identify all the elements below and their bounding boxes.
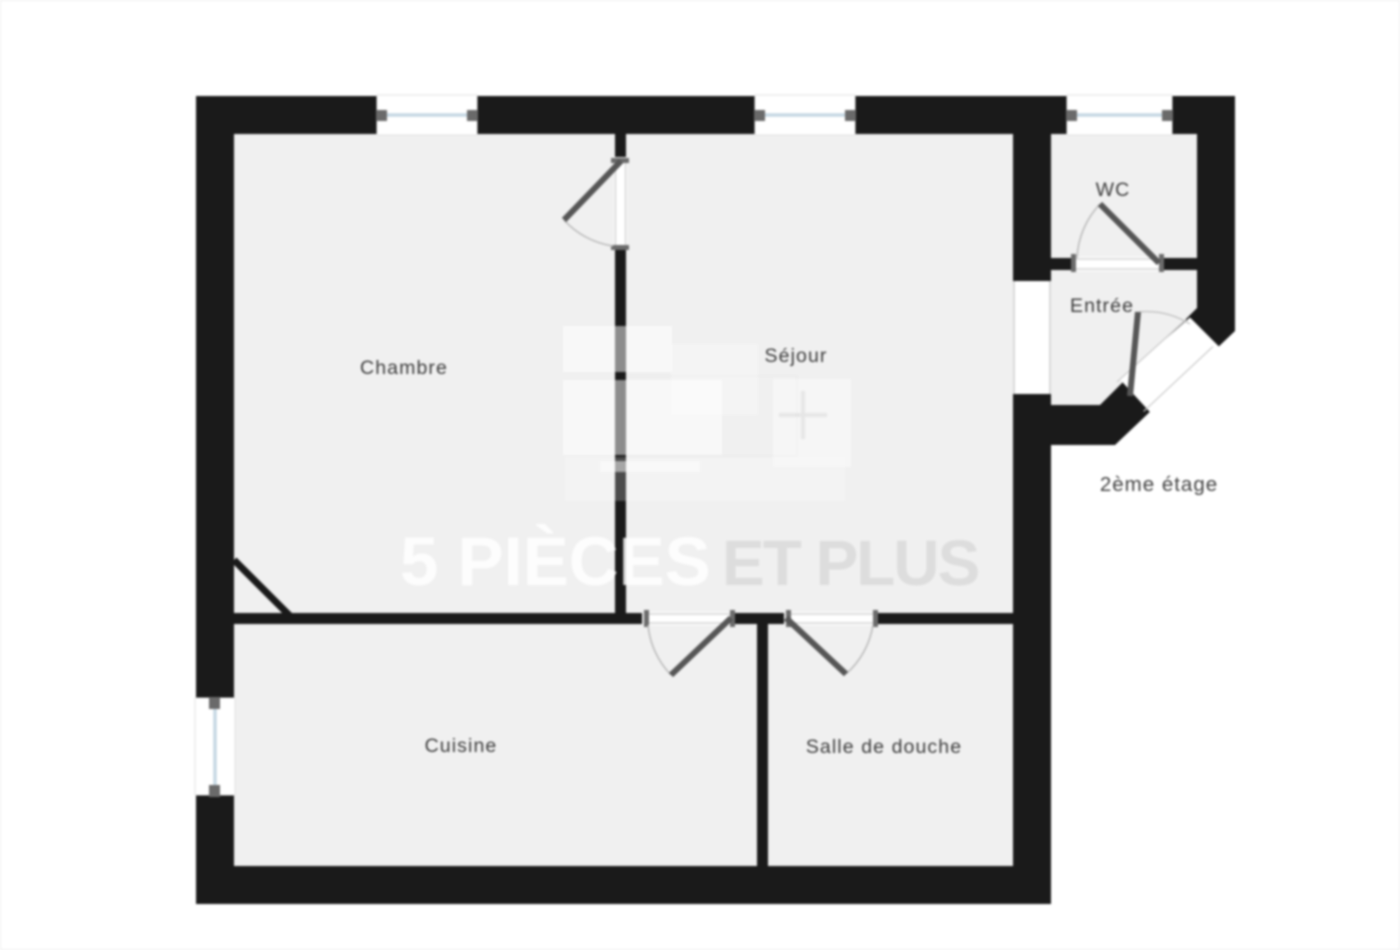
svg-text:5 PIÈCES: 5 PIÈCES — [400, 523, 711, 600]
svg-text:WC: WC — [1096, 179, 1131, 201]
svg-text:Salle de douche: Salle de douche — [806, 736, 962, 758]
svg-text:Chambre: Chambre — [360, 357, 448, 379]
svg-text:Entrée: Entrée — [1070, 295, 1134, 317]
svg-text:2ème étage: 2ème étage — [1100, 473, 1218, 496]
svg-text:ET PLUS: ET PLUS — [722, 527, 979, 599]
svg-text:Séjour: Séjour — [765, 345, 828, 367]
svg-text:Cuisine: Cuisine — [425, 735, 498, 757]
